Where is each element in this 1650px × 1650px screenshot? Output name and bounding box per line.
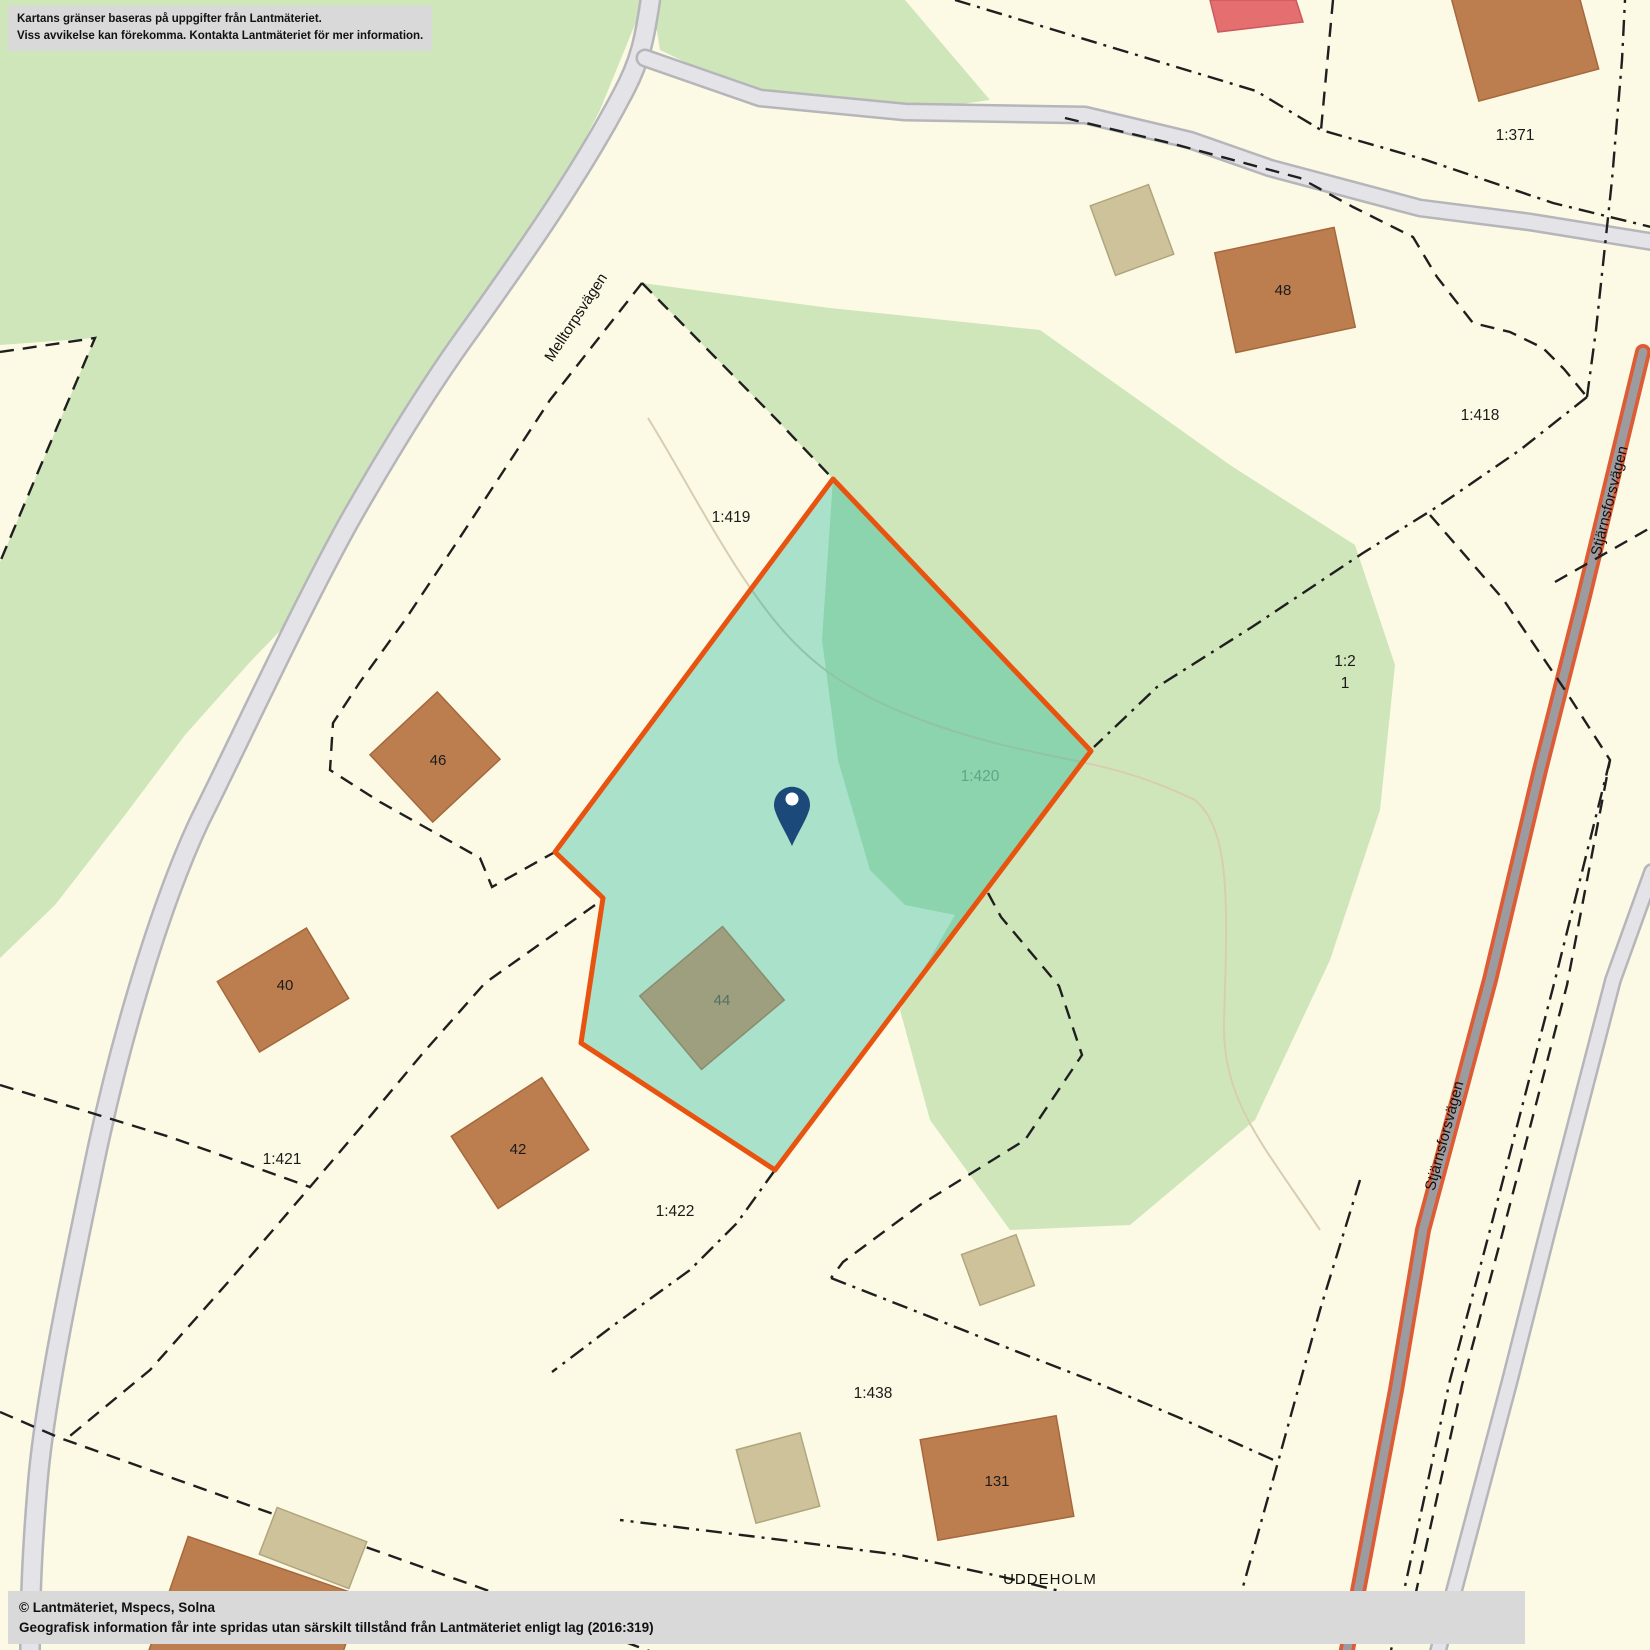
copyright-line-1: © Lantmäteriet, Mspecs, Solna xyxy=(19,1598,1514,1618)
disclaimer-line-2: Viss avvikelse kan förekomma. Kontakta L… xyxy=(17,28,423,45)
parcel-label-1-371: 1:371 xyxy=(1496,127,1535,144)
parcel-label-1-2: 1:2 xyxy=(1334,653,1356,670)
parcel-label-1-422: 1:422 xyxy=(656,1203,695,1220)
parcel-label-1-2-unit: 1 xyxy=(1341,675,1350,692)
disclaimer-line-1: Kartans gränser baseras på uppgifter frå… xyxy=(17,11,423,28)
building-label-44: 44 xyxy=(714,992,731,1009)
map-viewport[interactable]: 1:371 1:418 1:419 1:420 1:421 1:422 1:43… xyxy=(0,0,1650,1650)
map-copyright: © Lantmäteriet, Mspecs, Solna Geografisk… xyxy=(8,1591,1525,1644)
building-label-42: 42 xyxy=(510,1141,527,1158)
building-label-40: 40 xyxy=(277,977,294,994)
map-disclaimer: Kartans gränser baseras på uppgifter frå… xyxy=(8,6,432,51)
copyright-line-2: Geografisk information får inte spridas … xyxy=(19,1618,1514,1638)
place-label-uddeholm: UDDEHOLM xyxy=(1003,1571,1097,1588)
parcel-label-1-419: 1:419 xyxy=(712,509,751,526)
parcel-label-1-438: 1:438 xyxy=(854,1385,893,1402)
parcel-label-1-421: 1:421 xyxy=(263,1151,302,1168)
parcel-label-1-418: 1:418 xyxy=(1461,407,1500,424)
building-label-131: 131 xyxy=(984,1473,1009,1490)
parcel-label-1-420: 1:420 xyxy=(961,768,1000,785)
cadastral-map[interactable]: 1:371 1:418 1:419 1:420 1:421 1:422 1:43… xyxy=(0,0,1650,1650)
building-label-46: 46 xyxy=(430,752,447,769)
building-label-48: 48 xyxy=(1275,282,1292,299)
